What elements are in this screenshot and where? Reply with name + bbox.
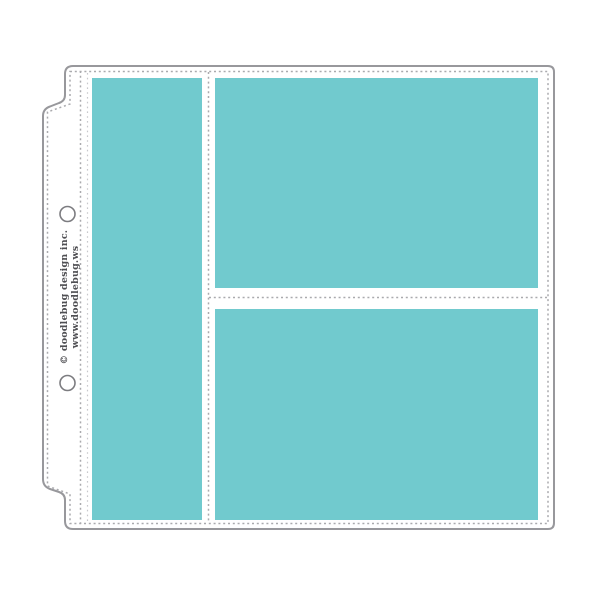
binder-hole-top: [60, 207, 75, 222]
branding-url-text: www.doodlebug.ws: [70, 246, 81, 350]
pocket-left-tall: [92, 78, 202, 520]
pocket-bottom-right: [215, 309, 538, 520]
page-protector-graphic: © doodlebug design inc. www.doodlebug.ws: [0, 0, 600, 600]
product-photo: © doodlebug design inc. www.doodlebug.ws: [0, 0, 600, 600]
branding-copyright-text: © doodlebug design inc.: [59, 230, 70, 365]
binder-hole-bottom: [60, 376, 75, 391]
pocket-top-right: [215, 78, 538, 288]
